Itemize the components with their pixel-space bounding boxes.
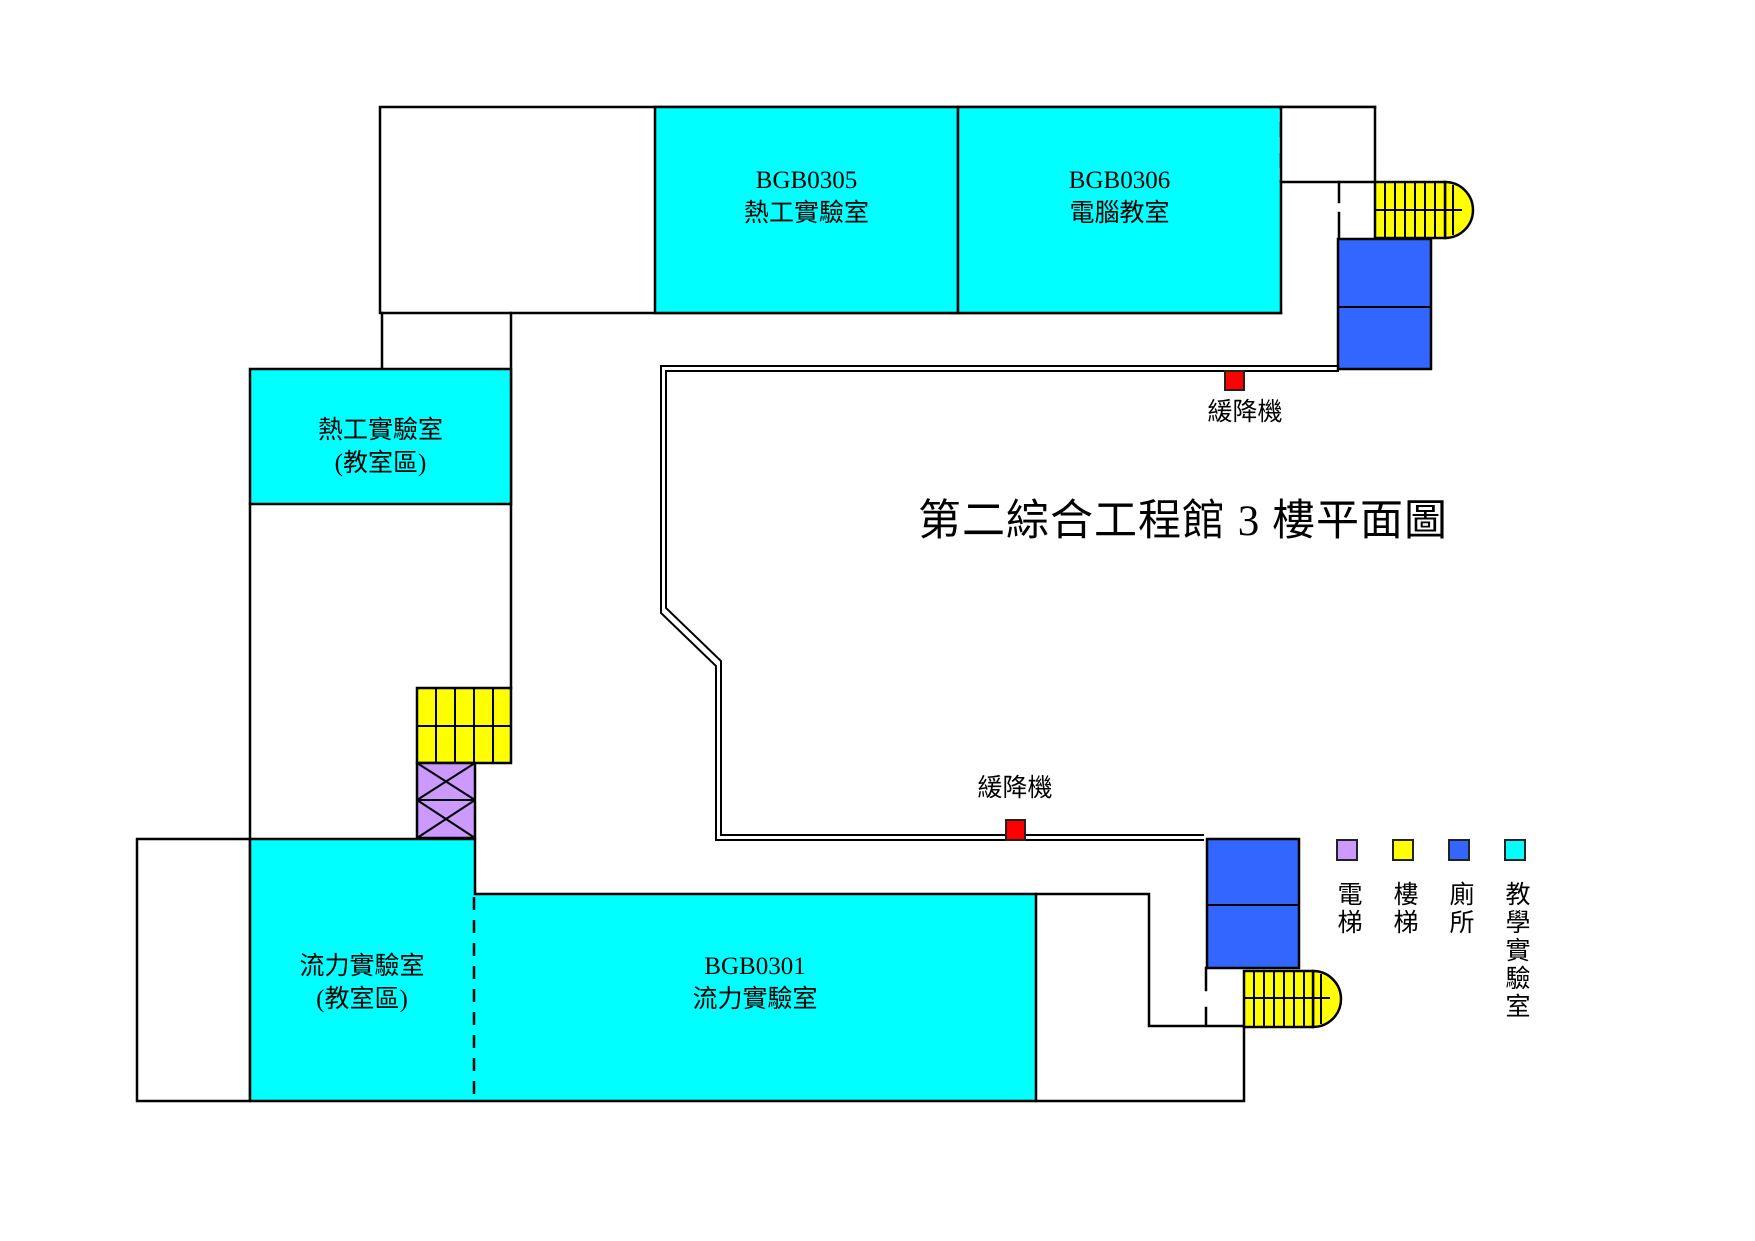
corridor-wall-inner (666, 371, 1338, 835)
floorplan-page: 第二綜合工程館 3 樓平面圖 BGB0305 熱工實驗室 BGB0306 電腦教… (0, 0, 1755, 1241)
room-bgb0301-label: BGB0301 流力實驗室 (474, 950, 1036, 1016)
descender-top-label: 緩降機 (1200, 396, 1290, 429)
room-fluid-classroom-label: 流力實驗室 (教室區) (250, 950, 474, 1016)
descender-bottom-label: 緩降機 (970, 772, 1060, 805)
stairs-bottom-right-icon (1244, 971, 1341, 1027)
thermal-classroom-name: 熱工實驗室 (250, 414, 511, 447)
room-bgb0306-label: BGB0306 電腦教室 (958, 164, 1281, 230)
descender-marker-top (1225, 371, 1244, 390)
room-bgb0305-label: BGB0305 熱工實驗室 (655, 164, 958, 230)
room-bgb0305-code: BGB0305 (655, 164, 958, 197)
corridor-wall-outer (661, 366, 1338, 840)
page-title: 第二綜合工程館 3 樓平面圖 (918, 498, 1448, 546)
legend-swatch-stairs (1393, 840, 1413, 860)
legend-label-teaching-lab: 教學實驗室 (1499, 881, 1531, 1021)
legend-label-stairs: 樓梯 (1387, 881, 1419, 937)
thermal-classroom-subname: (教室區) (250, 447, 511, 480)
room-bgb0301-name: 流力實驗室 (474, 983, 1036, 1016)
elevator-icon (417, 763, 475, 838)
room-bgb0306-code: BGB0306 (958, 164, 1281, 197)
room-thermal-classroom-label: 熱工實驗室 (教室區) (250, 414, 511, 480)
toilet-top-right-icon (1338, 239, 1431, 369)
stairs-top-right-icon (1375, 182, 1473, 238)
room-bgb0305-name: 熱工實驗室 (655, 197, 958, 230)
fluid-classroom-subname: (教室區) (250, 983, 474, 1016)
legend-label-elevator: 電梯 (1331, 881, 1363, 937)
toilet-bottom-right (1207, 839, 1299, 968)
legend-swatch-teaching-lab (1505, 840, 1525, 860)
bottom-left-room (137, 839, 250, 1101)
legend-swatch-toilet (1449, 840, 1469, 860)
legend-swatch-elevator (1337, 840, 1357, 860)
room-bgb0301-code: BGB0301 (474, 950, 1036, 983)
descender-marker-bottom (1006, 820, 1025, 840)
stairs-middle-icon (417, 688, 511, 763)
toilet-top-right (1338, 239, 1431, 369)
vestibule-top-right (1281, 107, 1375, 182)
fluid-classroom-name: 流力實驗室 (250, 950, 474, 983)
legend-label-toilet: 廁所 (1443, 881, 1475, 937)
room-bgb0306-name: 電腦教室 (958, 197, 1281, 230)
toilet-bottom-right-icon (1207, 839, 1299, 968)
